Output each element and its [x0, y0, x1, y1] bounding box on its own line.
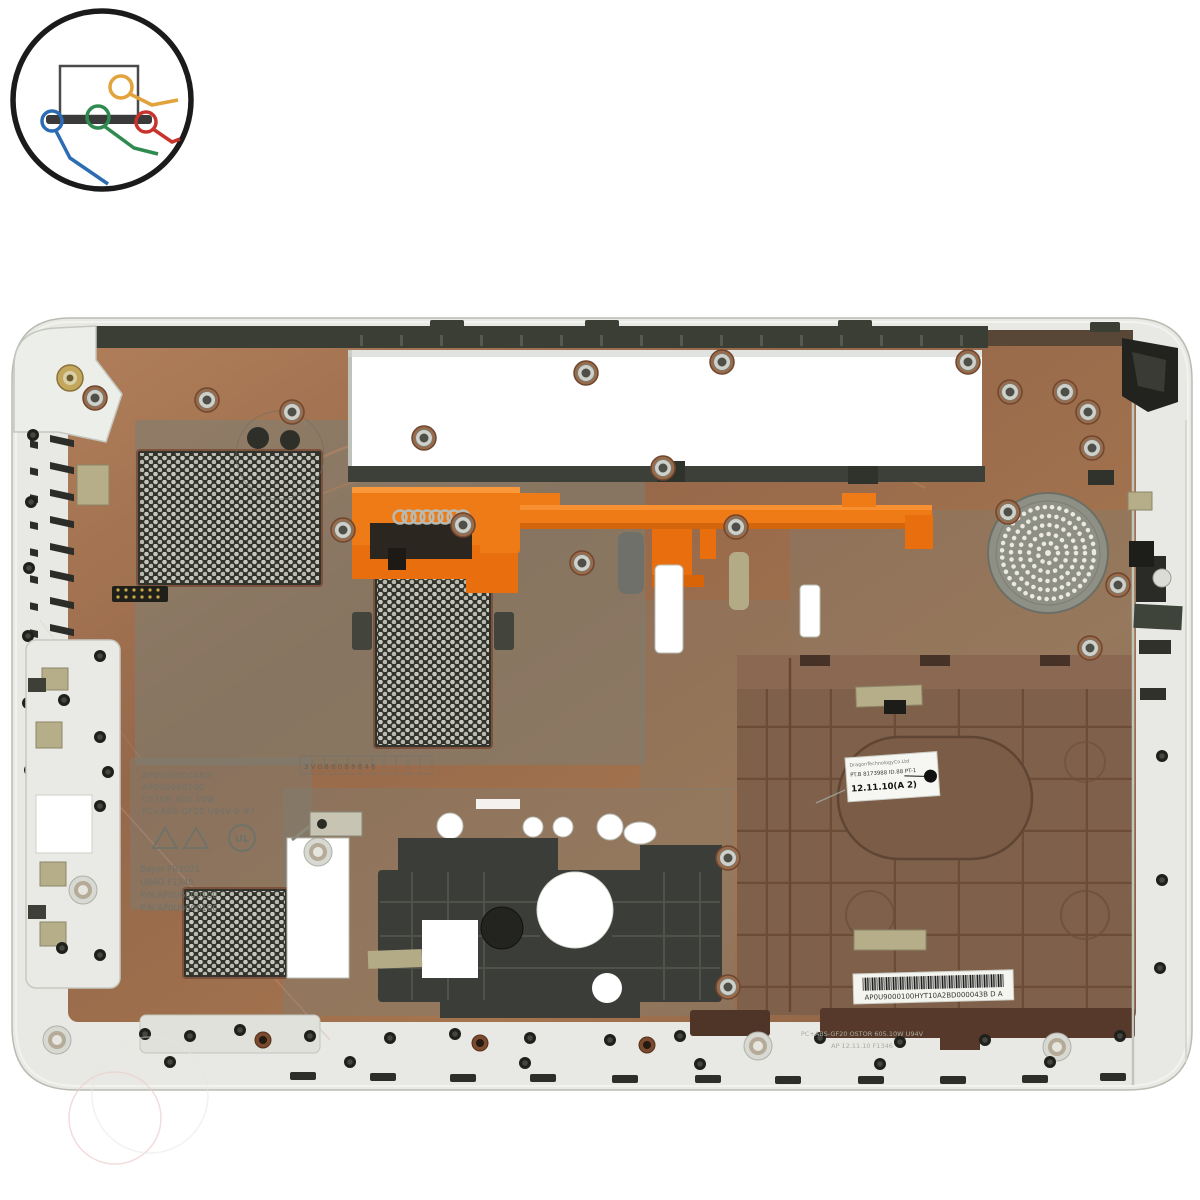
port-cutout-3 — [1140, 688, 1166, 700]
molded-line2: AP0U9000100 — [142, 783, 204, 792]
vent-grille-mid — [352, 572, 514, 748]
center-hole-large — [537, 872, 613, 948]
laptop-bottom-case: DragonTechnologyCo.Ltd PT.B 8173988 ID.8… — [12, 318, 1192, 1164]
molded-mat2: UBAO F1346 — [140, 878, 194, 888]
center-hole-small — [592, 973, 622, 1003]
vent-grille-small — [183, 888, 288, 978]
molded-line1: AP0U6000C4B0- — [142, 771, 214, 780]
left-rail-window — [36, 795, 92, 853]
right-component — [1129, 541, 1154, 567]
module-foil-pad — [368, 949, 423, 969]
rubber-plug — [481, 907, 523, 949]
top-cutout — [348, 350, 982, 468]
molded-mat4: P/N:AP0U9000100 — [140, 904, 218, 914]
bay-foil-tape-bottom — [854, 930, 926, 950]
ribbed-black-module — [368, 838, 722, 1018]
molded-mat3: P/N:AP0U6000100 — [140, 891, 218, 901]
right-foil-pad-1 — [1128, 492, 1152, 510]
molded-line4: PC+ABS-GF20 U94V-0 #7 — [142, 807, 256, 816]
gold-grommet — [57, 365, 83, 391]
svg-text:UL: UL — [235, 834, 250, 845]
date-strip-text: 3 V 0 8 8 0 8 8 8 4 6 — [304, 763, 376, 771]
barcode-label: AP0U9000100HYT10A2BD000043B D A — [853, 970, 1014, 1004]
vent-grille-cpu — [137, 450, 322, 586]
center-cutout-mid — [422, 920, 478, 978]
molded-mat1: Bayer FR3021 — [140, 865, 200, 875]
port-cutout-2 — [1139, 640, 1171, 654]
product-photo-page: DragonTechnologyCo.Ltd PT.B 8173988 ID.8… — [0, 0, 1200, 1200]
pin-header — [112, 586, 168, 602]
info-sticker: DragonTechnologyCo.Ltd PT.B 8173988 ID.8… — [845, 752, 940, 802]
bottom-molded-2: AP 12.11.10 F1346 — [831, 1042, 893, 1050]
bottom-molded-1: PC+ABS-GF20 OSTOR 605.10W U94V — [801, 1030, 924, 1038]
hinge-cup-left — [140, 1015, 320, 1053]
left-rail — [26, 640, 120, 988]
logo-laptop-screen-icon — [60, 66, 138, 116]
molded-line3: OSTOR 605.10W — [142, 795, 215, 804]
foil-pad — [77, 465, 109, 505]
product-photo: DragonTechnologyCo.Ltd PT.B 8173988 ID.8… — [0, 0, 1200, 1200]
shop-logo — [13, 11, 191, 189]
